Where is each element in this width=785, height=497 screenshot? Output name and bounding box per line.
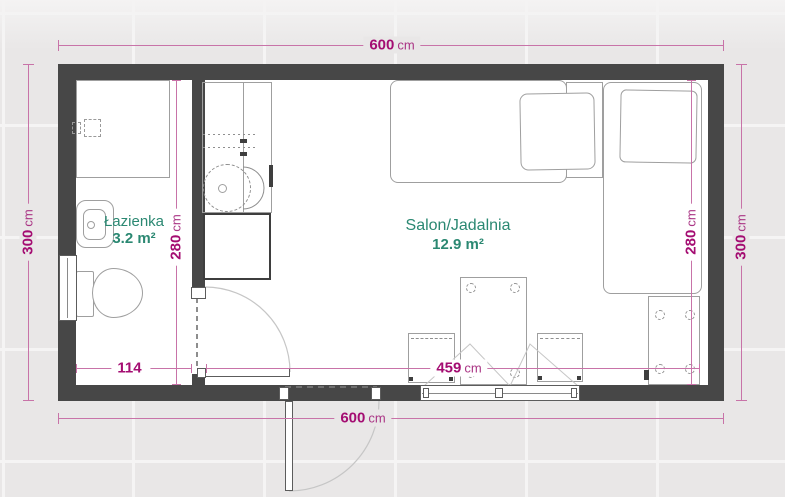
dim-tick [687,384,696,385]
floor-plan-scene: 600cm 600cm 300cm 300cm 280cm 280cm 114 … [0,0,785,497]
bathroom-door-leaf [205,368,290,377]
dim-value: 280 [683,230,700,255]
entry-door-post [371,387,381,400]
room-label-bathroom: Łazienka 3.2 m² [84,213,184,247]
dim-tick [687,80,696,81]
window-opening-mark [510,344,578,386]
bathroom-door-opening [196,298,198,368]
window-mullion [571,388,577,398]
entry-door-post [279,387,289,400]
dim-value: 114 [117,360,141,377]
room-area: 3.2 m² [84,230,184,247]
dim-label-bath-width: 114 [111,360,150,377]
dim-value: 300 [733,235,750,260]
dim-value: 300 [20,230,37,255]
entry-door-leaf [285,401,293,491]
dim-tick [736,64,747,65]
dim-label-right: 300cm [733,208,750,265]
dim-tick [76,364,77,373]
cabinet-door-swing-arc [243,167,264,209]
dim-tick [23,64,34,65]
dim-tick [172,80,181,81]
entry-door-opening [285,386,377,388]
dim-tick [736,400,747,401]
dim-tick [723,40,724,51]
room-label-salon: Salon/Jadalnia 12.9 m² [393,216,523,254]
dim-tick [172,384,181,385]
dim-tick [23,400,34,401]
bathroom-door-swing-arc [205,287,290,372]
dim-unit: cm [464,361,481,376]
dim-tick [191,364,192,373]
window-glass-line [67,258,68,318]
dim-tick [699,364,700,373]
window-left [59,255,77,321]
dim-label-left: 300cm [20,203,37,260]
window-mullion [423,388,429,398]
window-mullion [495,388,503,398]
window-bottom [420,385,580,401]
dim-unit: cm [21,209,36,226]
dim-unit: cm [368,411,385,426]
dim-unit: cm [397,38,414,53]
dim-unit: cm [734,214,749,231]
dim-tick [58,413,59,424]
dim-value: 600 [369,37,394,54]
dim-tick [58,40,59,51]
dim-tick [723,413,724,424]
room-area: 12.9 m² [393,235,523,254]
dim-value: 600 [340,410,365,427]
dim-label-salon-height: 280cm [683,203,700,260]
bathroom-door-post [191,287,206,299]
dim-tick [206,364,207,373]
dim-label-bottom: 600cm [334,410,391,427]
room-name: Łazienka [84,213,184,230]
dim-label-salon-width: 459cm [430,360,487,377]
room-name: Salon/Jadalnia [393,216,523,235]
dim-label-top: 600cm [363,37,420,54]
dim-value: 459 [436,360,461,377]
dim-unit: cm [684,209,699,226]
